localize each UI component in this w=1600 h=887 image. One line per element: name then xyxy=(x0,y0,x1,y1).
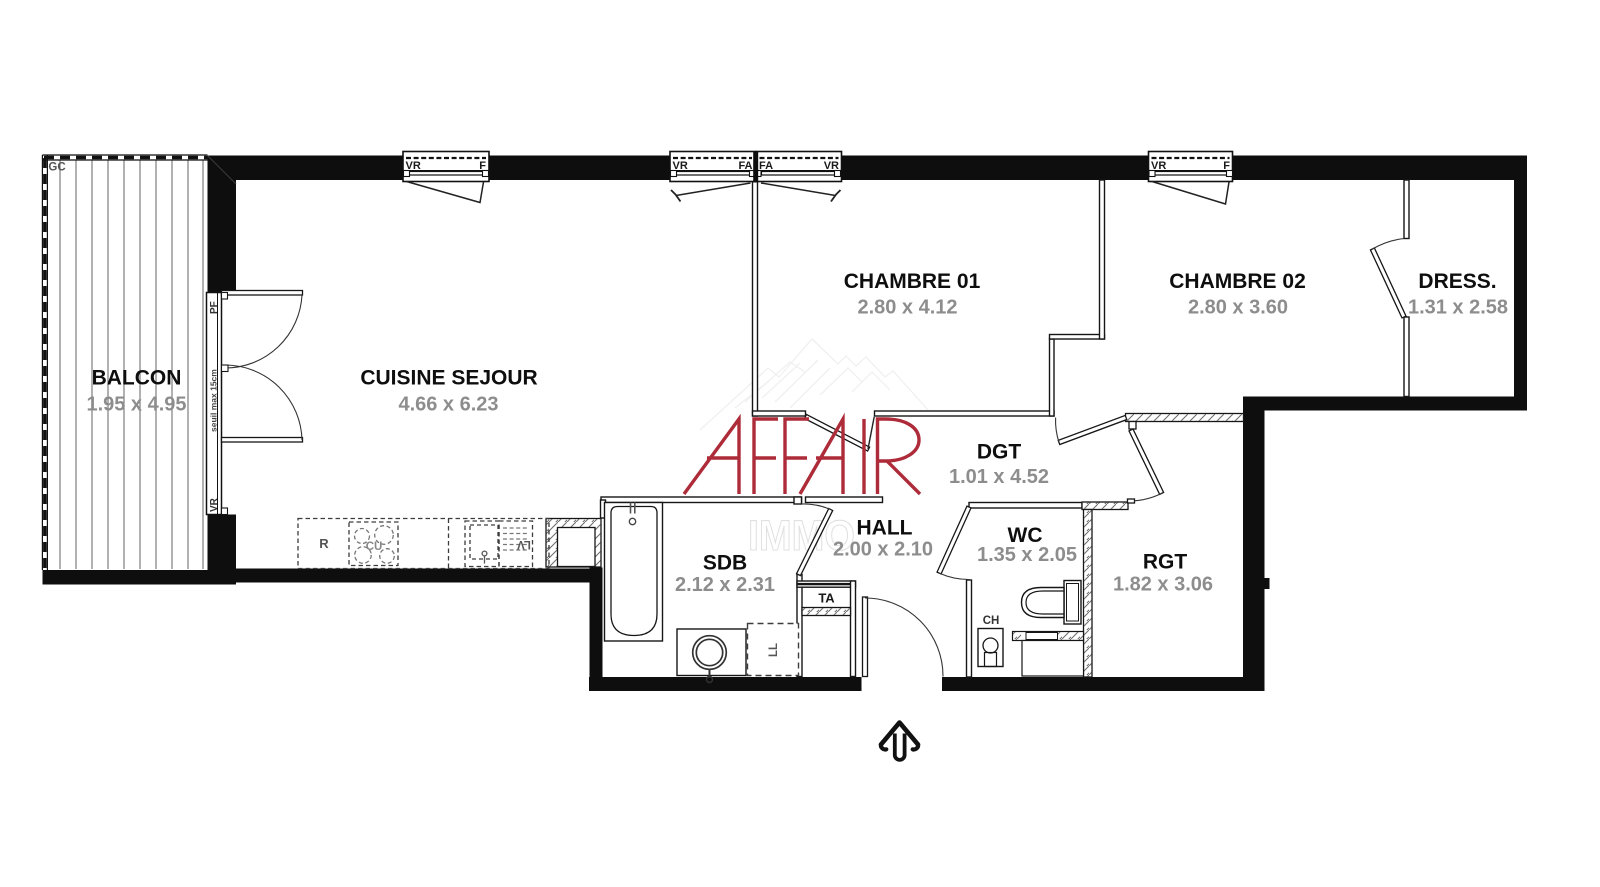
svg-text:DGT: DGT xyxy=(977,441,1022,464)
svg-text:1.82 x 3.06: 1.82 x 3.06 xyxy=(1113,574,1213,596)
svg-text:RGT: RGT xyxy=(1143,551,1188,574)
svg-text:BALCON: BALCON xyxy=(92,367,182,390)
svg-text:2.12 x 2.31: 2.12 x 2.31 xyxy=(675,574,775,596)
svg-text:seuil max 15cm: seuil max 15cm xyxy=(209,369,219,432)
svg-text:HALL: HALL xyxy=(857,517,913,540)
svg-text:SDB: SDB xyxy=(703,552,747,575)
svg-text:2.00 x 2.10: 2.00 x 2.10 xyxy=(833,539,933,561)
svg-text:CH: CH xyxy=(983,615,1000,627)
svg-text:2.80 x 4.12: 2.80 x 4.12 xyxy=(857,297,957,319)
svg-text:1.95 x 4.95: 1.95 x 4.95 xyxy=(86,394,186,416)
svg-text:CU: CU xyxy=(366,541,383,553)
svg-text:CHAMBRE 01: CHAMBRE 01 xyxy=(844,270,981,293)
svg-text:DRESS.: DRESS. xyxy=(1418,270,1496,293)
svg-text:TA: TA xyxy=(818,591,835,606)
svg-text:PF: PF xyxy=(209,301,220,314)
svg-text:GC: GC xyxy=(48,162,65,174)
svg-text:LV: LV xyxy=(517,538,531,550)
svg-text:R: R xyxy=(319,536,329,551)
svg-text:LL: LL xyxy=(768,643,780,657)
svg-text:CUISINE SEJOUR: CUISINE SEJOUR xyxy=(360,367,537,390)
svg-text:1.31 x 2.58: 1.31 x 2.58 xyxy=(1408,297,1508,319)
svg-text:CHAMBRE 02: CHAMBRE 02 xyxy=(1169,270,1306,293)
svg-text:1.35 x 2.05: 1.35 x 2.05 xyxy=(977,544,1077,566)
svg-text:1.01 x 4.52: 1.01 x 4.52 xyxy=(949,466,1049,488)
svg-text:4.66 x 6.23: 4.66 x 6.23 xyxy=(398,394,498,416)
svg-text:VR: VR xyxy=(209,497,220,512)
svg-text:2.80 x 3.60: 2.80 x 3.60 xyxy=(1188,297,1288,319)
